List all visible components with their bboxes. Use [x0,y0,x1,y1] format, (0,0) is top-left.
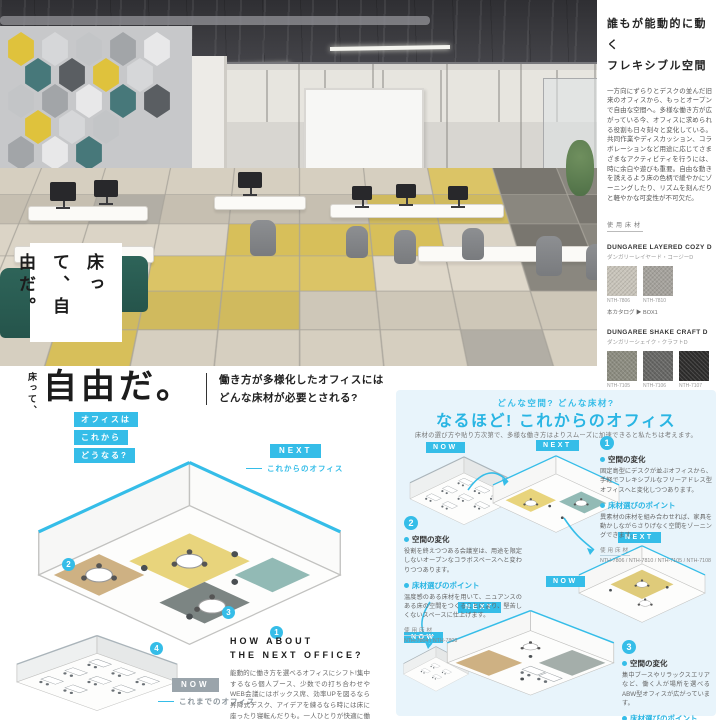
panel-title: なるほど! これからのオフィス [396,407,716,431]
headline-subtitle: 働き方が多様化したオフィスには どんな床材が必要とされる? [219,371,384,408]
bullet-icon [600,503,605,508]
carpet-tile [146,256,225,290]
swatch: NTH-7105 [607,351,637,389]
hex-panel [40,32,70,66]
headline-large: 自由だ。 [43,370,194,404]
bullet-icon [404,537,409,542]
panel-item-1: 1 空間の変化 固定島型にデスクが並ぶオフィスから、手軽でフレキシブルなフリーア… [600,436,712,564]
desk [418,246,597,262]
carpet-tile [300,330,384,366]
carpet-tile [300,256,376,290]
hex-panel [40,136,70,170]
ceiling-duct [0,16,430,25]
hex-panel [108,84,138,118]
brochure-page: 誰もが能動的に動く フレキシブル空間 一方向にずらりとデスクの並んだ旧来のオフィ… [0,0,720,720]
marker-2: 2 [62,558,75,571]
monitor [352,186,372,200]
column-body: 一方向にずらりとデスクの並んだ旧来のオフィスから、もっとオープンで自由な空間へ。… [607,87,712,204]
panel-item-3: 3 空間の変化 集中ブースやリラックスエリアなど、働く人が場所を選べるABW型オ… [622,640,710,720]
hex-panel [125,58,155,92]
now-flag: NOW [426,436,465,454]
carpet-tile [454,291,541,329]
product-dungaree-layered-cozy: DUNGAREE LAYERED COZY D ダンガリーレイヤード・コージーD… [607,244,712,316]
hex-panel [23,58,53,92]
carpet-tile [138,291,221,329]
hex-panel [6,32,36,66]
swatch: NTH-7810 [643,266,673,304]
carpet-tile [493,168,567,194]
carpet-tile [381,330,469,366]
monitor [94,180,118,197]
carpet-tile [219,291,299,329]
how-title: HOW ABOUT THE NEXT OFFICE? [230,634,370,663]
carpet-tile [501,195,579,224]
tag: オフィスは [74,412,138,427]
hex-panel [57,58,87,92]
hex-panel [142,84,172,118]
bullet-icon [404,583,409,588]
desk [28,206,148,221]
monitor [396,184,416,198]
bottom-left-section: 床って、 自由だ。 働き方が多様化したオフィスには どんな床材が必要とされる? … [0,366,396,720]
office-chair [250,220,276,256]
product-name-ja: ダンガリーシェイク・クラフトD [607,338,712,346]
section-headline: 床って、 自由だ。 働き方が多様化したオフィスには どんな床材が必要とされる? [26,370,384,416]
hex-panel [91,58,121,92]
how-about-block: HOW ABOUT THE NEXT OFFICE? 能動的に働き方を選べるオフ… [230,634,370,720]
catalog-note: 本カタログ ▶ BOX1 [607,308,712,316]
desk [214,196,306,210]
photo-whiteboard [304,88,424,180]
carpet-tile [153,224,228,255]
hex-panel [108,32,138,66]
headline-divider [206,373,207,405]
hexagon-panel-wall [0,26,192,178]
monitor [50,182,76,201]
hex-panel [74,136,104,170]
hex-panel [23,110,53,144]
marker-3: 3 [222,606,235,619]
carpet-tile [214,330,298,366]
materials-label: 使用床材 [607,220,643,232]
hex-panel [40,84,70,118]
bullet-icon [600,457,605,462]
office-chair [586,244,597,280]
panel-item-2: 2 空間の変化 役割を終えつつある会議室は、用途を限定しないオープンなコラボスペ… [404,516,522,644]
product-name: DUNGAREE LAYERED COZY D [607,244,712,251]
vertical-headline-box: 床って、自由だ。 [30,243,122,342]
hex-panel [74,32,104,66]
hex-panel [6,136,36,170]
now-badge: NOW [172,678,219,692]
carpet-tile [377,291,460,329]
hex-panel [142,32,172,66]
carpet-tile [165,168,234,194]
carpet-tile [461,330,554,366]
carpet-tile [300,291,380,329]
bullet-icon [622,716,627,720]
now-badge: NOW [546,570,585,588]
carpet-tile [530,291,597,329]
swatch: NTH-7806 [607,266,637,304]
monitor [238,172,262,188]
carpet-tile [223,256,299,290]
monitor [448,186,468,200]
product-name: DUNGAREE SHAKE CRAFT D [607,329,712,336]
column-title: 誰もが能動的に動く フレキシブル空間 [607,14,712,77]
office-chair [394,230,416,264]
plant [566,140,594,196]
hex-panel [91,110,121,144]
product-name-ja: ダンガリーレイヤード・コージーD [607,253,712,261]
swatch: NTH-7107 [679,351,709,389]
marker-4: 4 [150,642,163,655]
bullet-icon [622,661,627,666]
future-office-panel: どんな空間? どんな床材? なるほど! これからのオフィス 床材の選び方や貼り方… [396,390,716,716]
office-chair [346,226,368,258]
hex-panel [6,84,36,118]
hex-panel [74,84,104,118]
tag: これから [74,430,128,445]
how-body: 能動的に働き方を選べるオフィスにシフト!集中するなら個人ブース、少数での打ち合わ… [230,669,370,720]
next-flag: NEXT [536,434,579,452]
swatch: NTH-7106 [643,351,673,389]
office-chair [536,236,562,276]
office-chair [462,228,484,260]
carpet-tile [129,330,217,366]
hex-panel [57,110,87,144]
